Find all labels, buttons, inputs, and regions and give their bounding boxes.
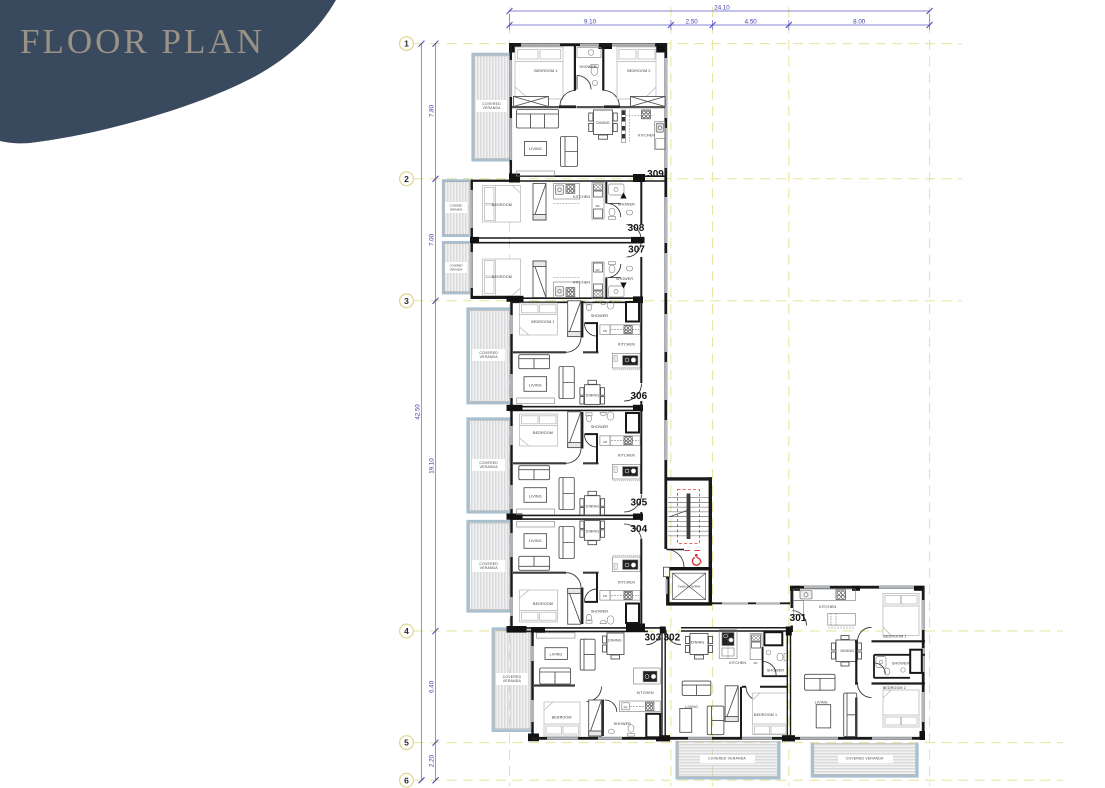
svg-text:DINING: DINING: [608, 639, 622, 643]
svg-text:KITCHEN: KITCHEN: [637, 691, 654, 695]
svg-text:2.50: 2.50: [686, 19, 699, 26]
svg-text:LIVING: LIVING: [815, 700, 828, 704]
svg-text:KITCHEN: KITCHEN: [573, 280, 590, 284]
svg-text:2: 2: [404, 174, 409, 184]
svg-text:LIVING: LIVING: [550, 652, 563, 656]
svg-text:6.40: 6.40: [429, 680, 436, 693]
svg-text:305: 305: [630, 498, 647, 509]
svg-text:KITCHEN: KITCHEN: [573, 195, 590, 199]
svg-text:7.80: 7.80: [429, 104, 436, 117]
svg-text:BEDROOM 2: BEDROOM 2: [627, 69, 650, 73]
svg-text:DINING: DINING: [840, 649, 854, 653]
svg-text:BEDROOM: BEDROOM: [492, 275, 512, 279]
svg-text:6: 6: [404, 775, 409, 785]
svg-text:3: 3: [404, 296, 409, 306]
svg-text:SHOWER: SHOWER: [591, 314, 609, 318]
svg-text:VERANDA: VERANDA: [450, 208, 463, 212]
svg-text:8.00: 8.00: [853, 19, 866, 26]
svg-text:42.50: 42.50: [415, 404, 422, 420]
svg-text:COVERED: COVERED: [450, 264, 463, 268]
svg-text:VERANDA: VERANDA: [450, 268, 463, 272]
svg-text:FR: FR: [596, 204, 600, 208]
svg-text:COVERED VERANDA: COVERED VERANDA: [846, 757, 884, 761]
svg-text:308: 308: [628, 223, 645, 234]
svg-text:SHOWER: SHOWER: [618, 203, 636, 207]
svg-text:BEDROOM 1: BEDROOM 1: [883, 634, 906, 638]
svg-text:2.20: 2.20: [429, 754, 436, 767]
svg-text:COVERED VERANDA: COVERED VERANDA: [708, 757, 746, 761]
svg-text:SHOWER: SHOWER: [767, 668, 785, 672]
svg-text:VERANDA: VERANDA: [503, 679, 522, 683]
svg-text:BEDROOM: BEDROOM: [552, 716, 572, 720]
svg-text:1: 1: [404, 39, 409, 49]
svg-text:304: 304: [630, 524, 647, 535]
svg-text:BEDROOM: BEDROOM: [533, 431, 553, 435]
svg-text:24.10: 24.10: [714, 5, 730, 12]
svg-text:SHOWER: SHOWER: [614, 722, 632, 726]
svg-text:306: 306: [630, 391, 647, 402]
svg-text:FLOOR PLAN: FLOOR PLAN: [20, 22, 265, 61]
svg-text:7.00: 7.00: [429, 233, 436, 246]
svg-text:307: 307: [628, 245, 645, 256]
svg-text:LIVING: LIVING: [529, 383, 542, 387]
svg-text:DINING: DINING: [596, 121, 610, 125]
svg-text:BEDROOM 1: BEDROOM 1: [754, 713, 777, 717]
svg-text:KITCHEN: KITCHEN: [618, 581, 635, 585]
svg-text:BEDROOM: BEDROOM: [492, 203, 512, 207]
svg-text:FR: FR: [603, 594, 607, 598]
svg-text:DINING: DINING: [586, 530, 600, 534]
svg-text:LIVING: LIVING: [529, 147, 542, 151]
svg-text:VERANDA: VERANDA: [480, 355, 499, 359]
svg-text:KITCHEN: KITCHEN: [618, 343, 635, 347]
svg-text:VERANDA: VERANDA: [483, 106, 502, 110]
svg-text:9.10: 9.10: [584, 19, 597, 26]
svg-text:SHOWER: SHOWER: [591, 425, 609, 429]
svg-text:KITCHEN: KITCHEN: [638, 134, 655, 138]
svg-text:FR: FR: [754, 661, 758, 665]
svg-text:DINING: DINING: [691, 641, 705, 645]
svg-text:SHOWER: SHOWER: [579, 65, 597, 69]
svg-text:LIVING: LIVING: [529, 494, 542, 498]
svg-text:KITCHEN: KITCHEN: [819, 605, 836, 609]
svg-text:FR: FR: [624, 705, 628, 709]
svg-text:SHOWER: SHOWER: [616, 277, 634, 281]
svg-text:FR: FR: [603, 440, 607, 444]
svg-text:SHOWER: SHOWER: [892, 661, 910, 665]
svg-text:KITCHEN: KITCHEN: [729, 661, 746, 665]
svg-text:FR: FR: [596, 268, 600, 272]
svg-text:DINING: DINING: [586, 393, 600, 397]
svg-text:4.50: 4.50: [745, 19, 758, 26]
svg-text:SHOWER: SHOWER: [591, 609, 609, 613]
svg-text:DINING: DINING: [586, 504, 600, 508]
svg-text:KITCHEN: KITCHEN: [618, 454, 635, 458]
svg-text:302: 302: [663, 633, 680, 644]
svg-text:LIVING: LIVING: [529, 539, 542, 543]
svg-text:FR: FR: [603, 329, 607, 333]
svg-text:301: 301: [790, 613, 807, 624]
svg-text:303: 303: [644, 633, 661, 644]
svg-text:ΑΝΕΛΚΥΣΤΗΡΑΣ: ΑΝΕΛΚΥΣΤΗΡΑΣ: [677, 585, 700, 589]
svg-text:4: 4: [404, 626, 409, 636]
svg-text:BEDROOM 1: BEDROOM 1: [531, 320, 554, 324]
svg-text:5: 5: [404, 738, 409, 748]
svg-text:VERANDA: VERANDA: [480, 566, 499, 570]
svg-text:BEDROOM: BEDROOM: [533, 602, 553, 606]
svg-text:COVERED: COVERED: [450, 204, 463, 208]
svg-text:BEDROOM 2: BEDROOM 2: [883, 686, 906, 690]
svg-text:BEDROOM 1: BEDROOM 1: [534, 69, 557, 73]
svg-text:309: 309: [647, 169, 664, 180]
svg-text:VERANDA: VERANDA: [480, 465, 499, 469]
svg-text:19.10: 19.10: [429, 458, 436, 474]
